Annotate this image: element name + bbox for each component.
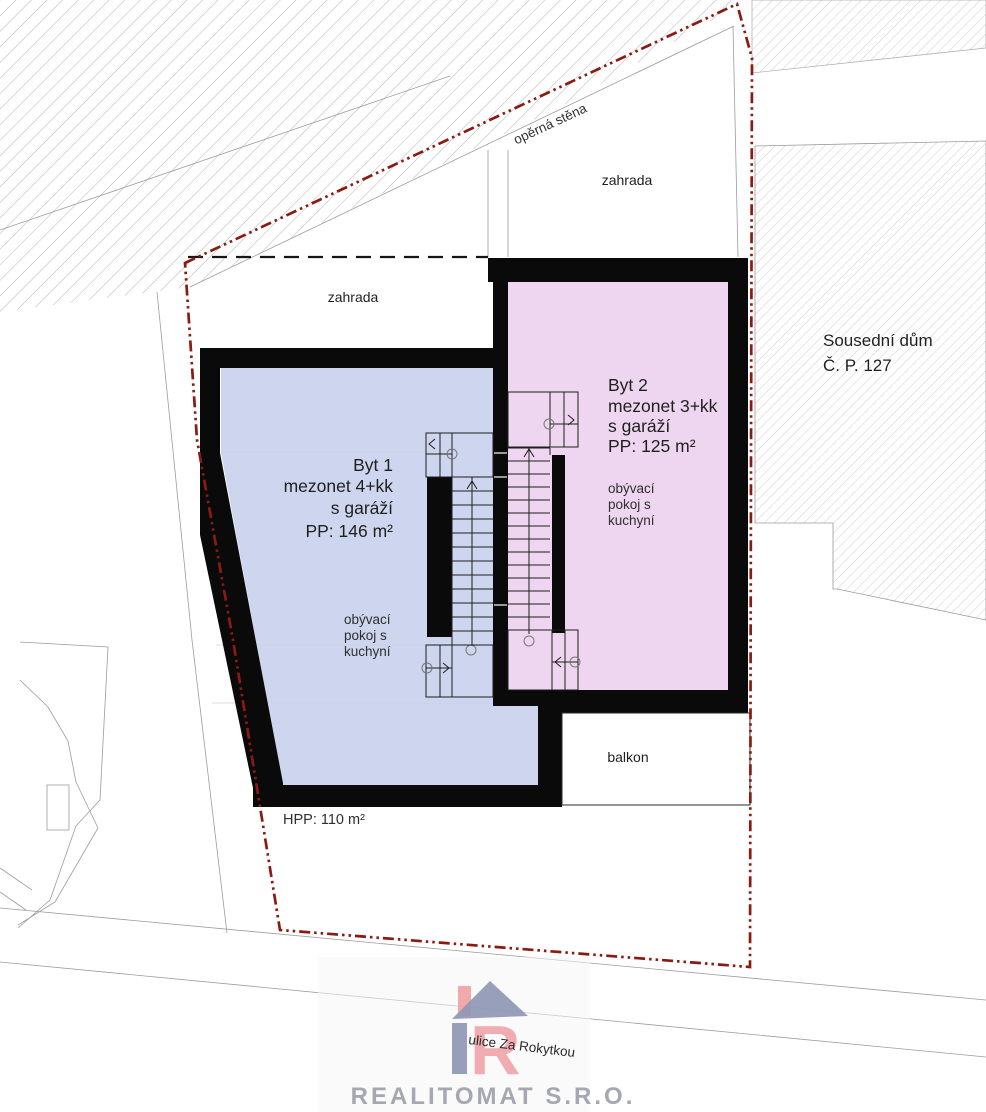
garden-right-label: zahrada: [602, 172, 653, 188]
byt2-area: PP: 125 m²: [608, 436, 696, 456]
byt1-living-room-line1: obývací: [344, 612, 391, 627]
wall-notch: [393, 362, 405, 368]
byt1-living-room-line2: pokoj s: [344, 628, 387, 643]
byt1-layout: mezonet 4+kk: [284, 476, 394, 496]
company-watermark: REALITOMAT S.R.O.: [351, 1083, 636, 1110]
byt1-area: PP: 146 m²: [305, 521, 393, 541]
byt1-living-room-line3: kuchyní: [344, 644, 391, 659]
floor-plan-drawing: R ulice Za Rokytkou REALITOMAT S.R.O. za…: [0, 0, 986, 1112]
byt2-living-room-line3: kuchyní: [608, 513, 655, 528]
garden-left-label: zahrada: [328, 289, 379, 305]
byt2-living-room-line2: pokoj s: [608, 497, 651, 512]
wall-stair-flank-left: [427, 477, 452, 637]
wall-byt2-bottom-left: [493, 690, 562, 706]
neighbor-house-label-line2: Č. P. 127: [823, 356, 892, 375]
logo-bar: [452, 1023, 467, 1074]
watermark: R ulice Za Rokytkou REALITOMAT S.R.O.: [318, 957, 635, 1112]
balcony-outline: [562, 713, 750, 805]
gross-floor-area-label: HPP: 110 m²: [283, 812, 365, 828]
byt2-name: Byt 2: [608, 375, 648, 395]
wall-byt2-bottom: [562, 690, 748, 713]
floor-plan-page: R ulice Za Rokytkou REALITOMAT S.R.O. za…: [0, 0, 986, 1112]
wall-byt1-top: [200, 348, 493, 368]
wall-top: [488, 258, 748, 282]
byt2-living-room-line1: obývací: [608, 481, 655, 496]
byt2-garage: s garáží: [608, 416, 670, 436]
byt1-garage: s garáží: [331, 498, 393, 518]
wall-party: [493, 258, 508, 706]
balcony-label: balkon: [607, 749, 648, 765]
byt1-name: Byt 1: [353, 455, 393, 475]
wall-stair-flank-right: [552, 455, 565, 633]
byt2-layout: mezonet 3+kk: [608, 396, 718, 416]
wall-right: [728, 258, 748, 713]
neighbor-house-label-line1: Sousední dům: [823, 331, 933, 350]
wall-byt1-bottom: [253, 785, 562, 807]
